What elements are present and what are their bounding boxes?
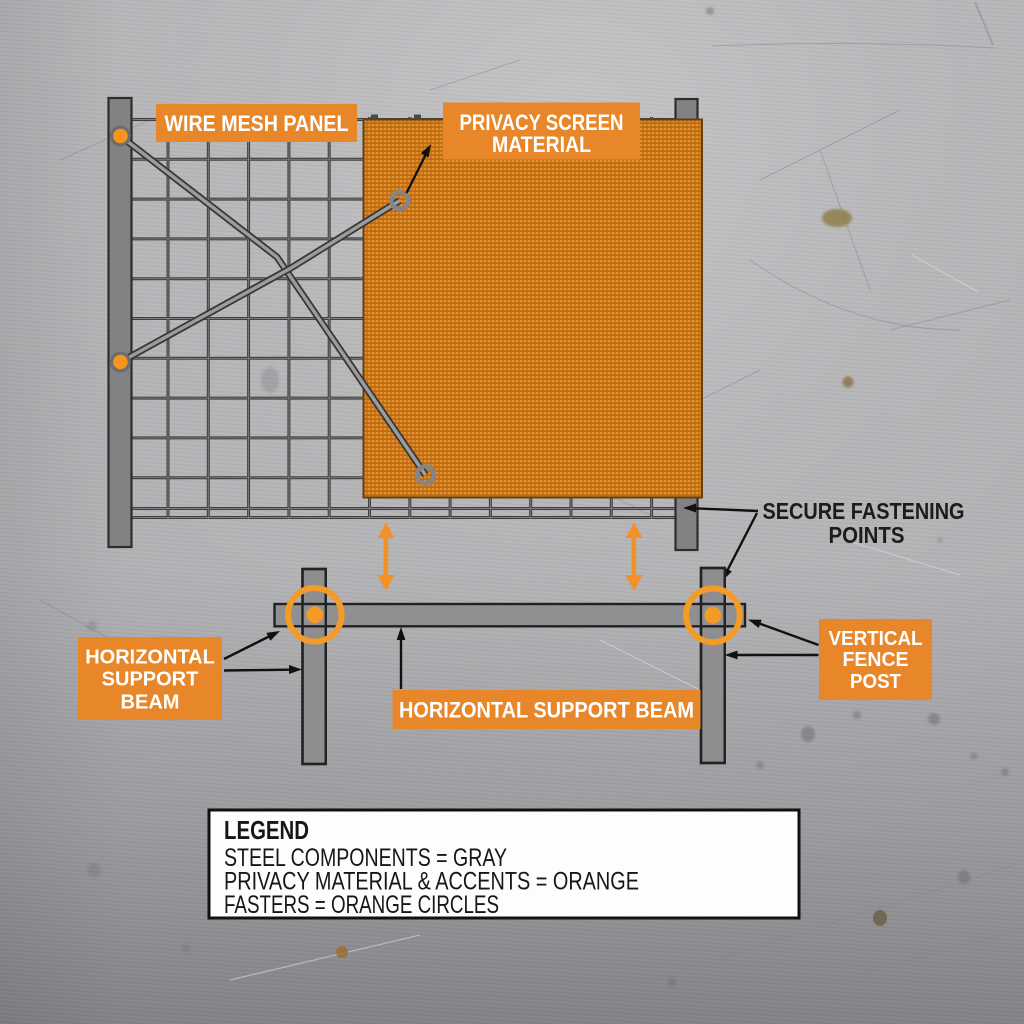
svg-text:SECURE FASTENING: SECURE FASTENING bbox=[763, 498, 965, 524]
svg-text:HORIZONTAL SUPPORT BEAM: HORIZONTAL SUPPORT BEAM bbox=[399, 698, 694, 723]
svg-text:WIRE MESH PANEL: WIRE MESH PANEL bbox=[165, 111, 349, 136]
svg-text:SUPPORT: SUPPORT bbox=[102, 669, 199, 691]
svg-text:BEAM: BEAM bbox=[121, 692, 180, 714]
svg-text:MATERIAL: MATERIAL bbox=[492, 132, 591, 157]
svg-text:HORIZONTAL: HORIZONTAL bbox=[85, 647, 215, 669]
svg-text:LEGEND: LEGEND bbox=[224, 815, 309, 845]
svg-text:VERTICAL: VERTICAL bbox=[829, 628, 923, 650]
svg-text:FENCE: FENCE bbox=[843, 649, 909, 671]
svg-text:POINTS: POINTS bbox=[829, 522, 905, 548]
svg-text:FASTERS = ORANGE CIRCLES: FASTERS = ORANGE CIRCLES bbox=[224, 891, 499, 919]
svg-text:POST: POST bbox=[850, 671, 901, 693]
